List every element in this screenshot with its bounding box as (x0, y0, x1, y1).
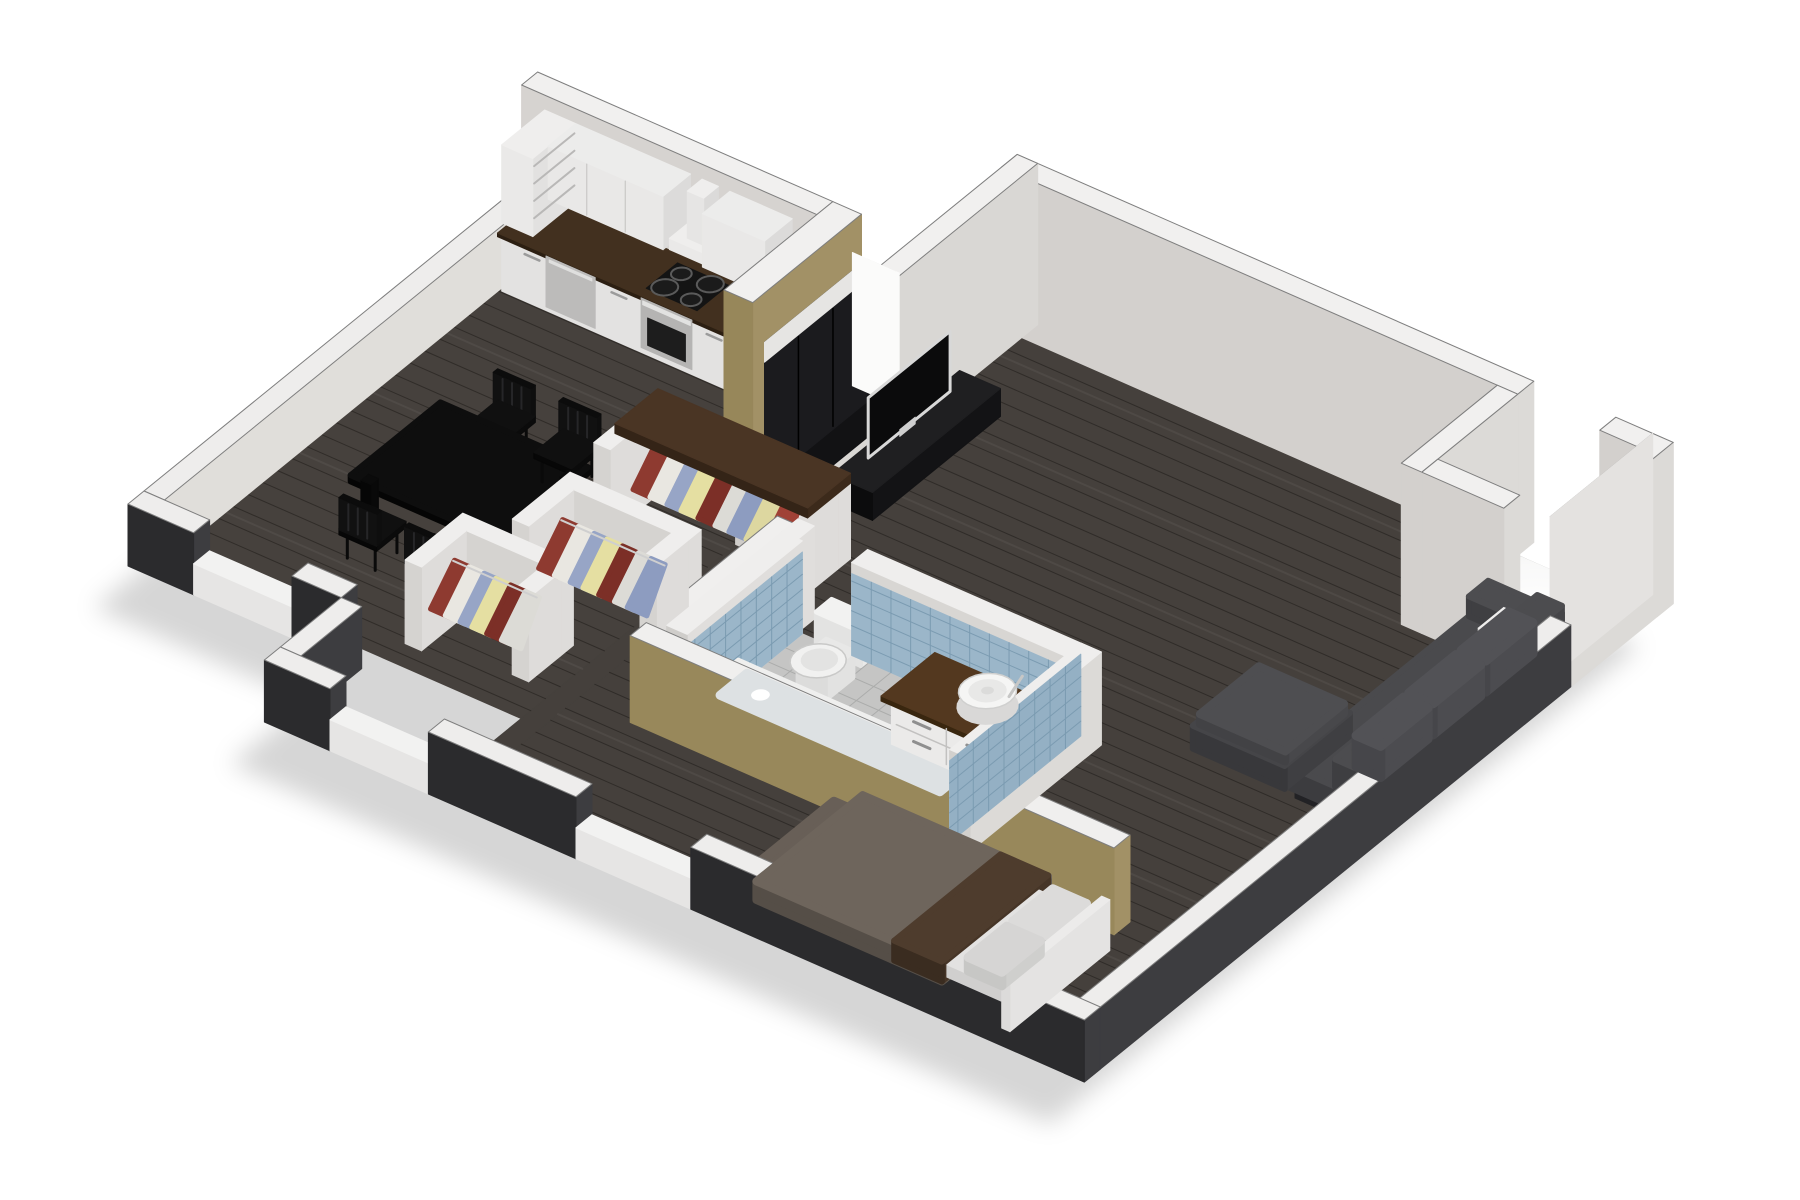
floorplan-3d-svg (0, 0, 1800, 1200)
toilet-bowl (790, 644, 846, 678)
floorplan-canvas (0, 0, 1800, 1200)
